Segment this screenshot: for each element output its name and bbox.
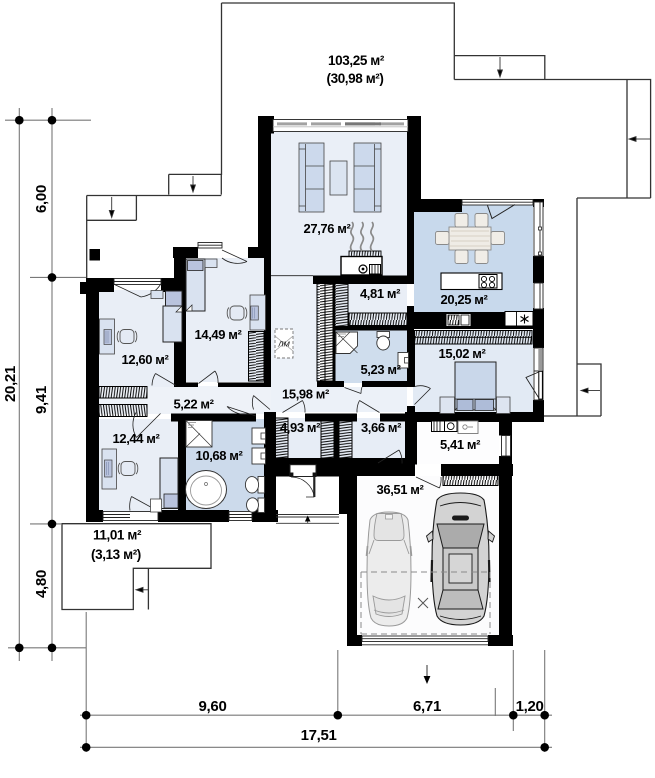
svg-text:12,60 м²: 12,60 м²	[122, 352, 170, 367]
svg-text:20,21: 20,21	[2, 366, 19, 402]
svg-text:5,22 м²: 5,22 м²	[173, 397, 214, 412]
svg-text:27,76 м²: 27,76 м²	[304, 221, 352, 236]
svg-text:14,49 м²: 14,49 м²	[195, 327, 243, 342]
svg-text:3,66 м²: 3,66 м²	[361, 420, 402, 435]
svg-text:1,20: 1,20	[516, 698, 544, 715]
svg-text:36,51 м²: 36,51 м²	[377, 482, 425, 497]
svg-text:4,93 м²: 4,93 м²	[280, 420, 321, 435]
svg-text:103,25 м²: 103,25 м²	[328, 53, 385, 68]
svg-text:10,68 м²: 10,68 м²	[196, 448, 244, 463]
svg-text:5,23 м²: 5,23 м²	[360, 362, 401, 377]
svg-text:20,25 м²: 20,25 м²	[441, 292, 489, 307]
svg-text:9,41: 9,41	[33, 386, 50, 414]
svg-text:4,81 м²: 4,81 м²	[360, 286, 401, 301]
svg-text:ЛМ: ЛМ	[277, 340, 290, 349]
svg-text:15,02 м²: 15,02 м²	[439, 346, 487, 361]
svg-text:17,51: 17,51	[301, 727, 337, 744]
svg-text:(3,13 м²): (3,13 м²)	[91, 547, 141, 562]
svg-text:11,01 м²: 11,01 м²	[93, 528, 142, 543]
svg-text:6,71: 6,71	[413, 698, 441, 715]
svg-text:15,98 м²: 15,98 м²	[282, 387, 330, 402]
svg-text:4,80: 4,80	[33, 570, 50, 598]
svg-text:5,41 м²: 5,41 м²	[440, 437, 481, 452]
svg-text:(30,98 м²): (30,98 м²)	[326, 71, 383, 86]
svg-text:9,60: 9,60	[199, 698, 227, 715]
svg-text:6,00: 6,00	[33, 185, 50, 213]
svg-text:12,44 м²: 12,44 м²	[113, 431, 161, 446]
